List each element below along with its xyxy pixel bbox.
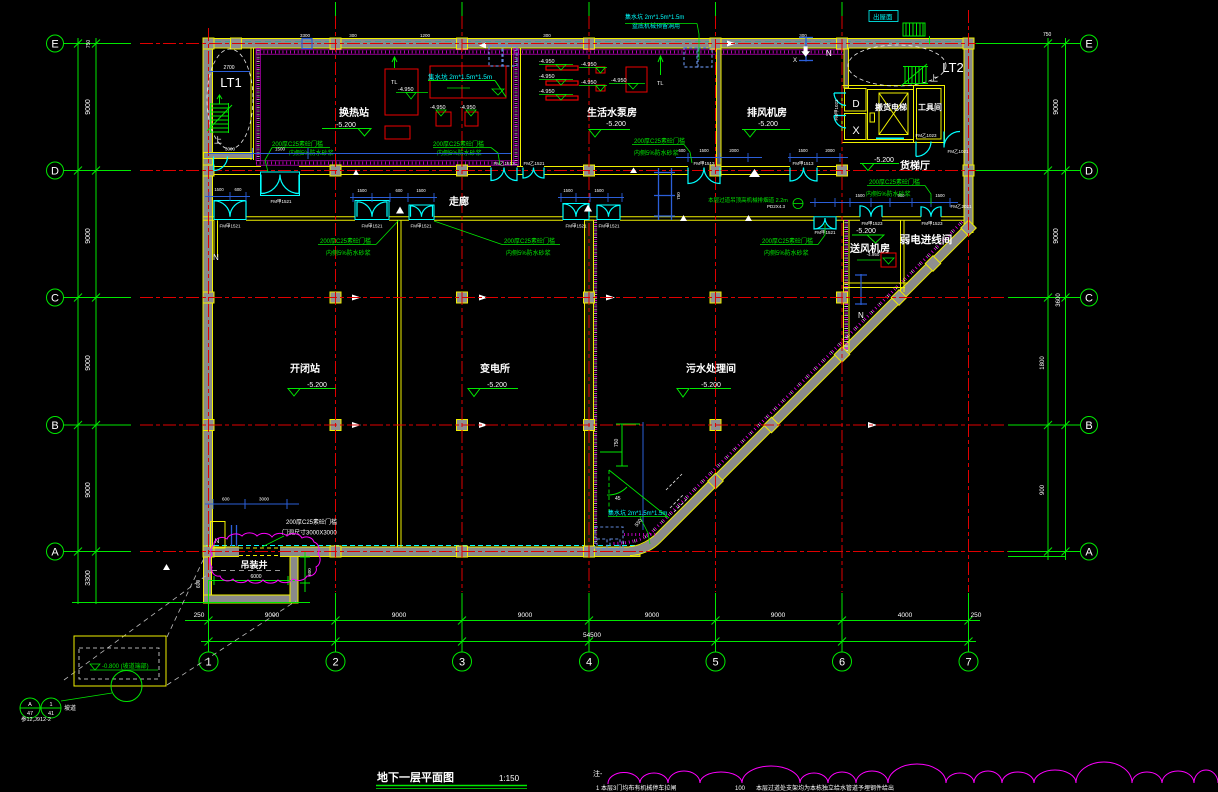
svg-text:1500: 1500 [275,147,286,152]
svg-text:-0.800 (坡道端部): -0.800 (坡道端部) [102,662,149,670]
svg-text:工具间: 工具间 [918,102,942,112]
svg-text:1500: 1500 [699,148,709,153]
svg-text:C: C [1085,293,1093,305]
svg-text:6000: 6000 [250,574,261,580]
svg-text:PD2X4.3: PD2X4.3 [767,204,786,209]
svg-text:内侧5%防水砂浆: 内侧5%防水砂浆 [764,249,809,257]
svg-text:1500: 1500 [594,188,604,193]
svg-text:LT2: LT2 [942,60,963,75]
svg-text:9000: 9000 [1053,228,1060,244]
svg-text:地下一层平面图: 地下一层平面图 [377,770,454,784]
svg-text:9000: 9000 [771,612,786,619]
svg-text:1500: 1500 [563,188,573,193]
svg-text:弱电进线间: 弱电进线间 [900,233,953,246]
svg-text:9000: 9000 [265,612,280,619]
svg-text:1:150: 1:150 [499,774,520,783]
svg-text:N: N [213,253,219,262]
svg-text:TL: TL [657,81,663,87]
svg-text:600: 600 [396,188,404,193]
svg-text:1500: 1500 [798,148,808,153]
svg-text:排风机房: 排风机房 [747,106,787,119]
svg-text:-5.200: -5.200 [874,157,894,164]
svg-text:本层过道处支架均为本栋独立给水管道予埋钢件给出: 本层过道处支架均为本栋独立给水管道予埋钢件给出 [756,784,894,792]
svg-text:100: 100 [735,786,746,792]
svg-text:吊装井: 吊装井 [240,559,267,570]
svg-text:600: 600 [222,497,230,502]
svg-text:1800: 1800 [1040,356,1046,370]
svg-text:1500: 1500 [357,188,367,193]
svg-text:200厚C25素砼门槛: 200厚C25素砼门槛 [320,237,371,245]
svg-text:-5.200: -5.200 [856,228,876,235]
svg-text:200厚C25素砼门槛: 200厚C25素砼门槛 [762,237,813,245]
svg-text:2: 2 [332,657,338,669]
svg-text:注-: 注- [593,769,603,778]
svg-text:内侧5%防水砂浆: 内侧5%防水砂浆 [326,249,371,257]
svg-text:上: 上 [214,136,222,145]
svg-text:45: 45 [615,496,621,502]
svg-text:750: 750 [86,40,92,49]
svg-text:参12,J912-2: 参12,J912-2 [21,715,51,723]
svg-text:-5.200: -5.200 [307,382,327,389]
svg-text:生活水泵房: 生活水泵房 [587,106,637,119]
svg-text:9000: 9000 [85,228,92,244]
svg-text:9000: 9000 [518,612,533,619]
svg-text:3000: 3000 [259,497,270,502]
svg-text:污水处理间: 污水处理间 [686,362,736,375]
svg-text:LT1: LT1 [220,75,241,90]
svg-text:FM乙2021: FM乙2021 [950,203,972,209]
svg-text:集水坑 2m*1.5m*1.5m: 集水坑 2m*1.5m*1.5m [608,509,667,517]
svg-text:内侧5%防水砂浆: 内侧5%防水砂浆 [634,149,679,157]
svg-text:1500: 1500 [416,188,426,193]
svg-text:-4.950: -4.950 [867,252,880,257]
svg-text:2000: 2000 [729,148,739,153]
svg-text:坡道: 坡道 [64,704,76,712]
svg-text:-5.200: -5.200 [336,122,356,129]
svg-text:E: E [51,39,58,51]
svg-text:200厚C25素砼门槛: 200厚C25素砼门槛 [634,137,685,145]
svg-text:1200: 1200 [420,33,431,38]
svg-text:FM乙1521: FM乙1521 [523,160,545,166]
svg-text:1 本层3门均布有机械停车拉闸: 1 本层3门均布有机械停车拉闸 [596,784,676,792]
svg-text:B: B [1085,420,1092,432]
svg-text:A: A [1085,547,1093,559]
svg-text:-5.200: -5.200 [701,382,721,389]
svg-text:FM乙1513: FM乙1513 [493,160,515,166]
svg-text:搬货电梯: 搬货电梯 [875,102,907,112]
svg-text:300: 300 [543,33,551,38]
svg-text:门洞尺寸3000X3000: 门洞尺寸3000X3000 [282,529,337,537]
svg-text:200厚C25素砼门槛: 200厚C25素砼门槛 [869,178,920,186]
svg-text:-5.200: -5.200 [487,382,507,389]
svg-text:3300: 3300 [85,570,92,586]
svg-text:9000: 9000 [645,612,660,619]
svg-text:1500: 1500 [935,193,945,198]
svg-text:换热站: 换热站 [339,106,369,119]
svg-text:9000: 9000 [85,355,92,371]
svg-text:750: 750 [614,438,620,447]
svg-text:3600: 3600 [1056,293,1062,307]
svg-text:200厚C25素砼门槛: 200厚C25素砼门槛 [286,518,337,526]
svg-text:N: N [858,311,864,320]
svg-text:-5.200: -5.200 [758,121,778,128]
svg-text:变电所: 变电所 [480,362,510,375]
svg-text:4000: 4000 [898,612,913,619]
svg-text:内侧5%防水砂浆: 内侧5%防水砂浆 [866,190,911,198]
svg-text:集水坑 2m*1.5m*1.5m: 集水坑 2m*1.5m*1.5m [428,72,492,81]
svg-text:9000: 9000 [392,612,407,619]
svg-text:X: X [793,58,797,64]
svg-text:E: E [1085,39,1092,51]
svg-text:300: 300 [349,33,357,38]
svg-text:D: D [51,166,59,178]
svg-text:750: 750 [676,192,681,200]
svg-text:9000: 9000 [1053,99,1060,115]
svg-text:1500: 1500 [214,187,224,192]
svg-text:开闭站: 开闭站 [290,362,320,375]
svg-text:3300: 3300 [300,33,311,38]
svg-text:7: 7 [965,657,971,669]
svg-text:FM乙1023: FM乙1023 [915,132,937,138]
svg-text:N: N [826,49,832,58]
svg-text:3000: 3000 [225,147,236,152]
svg-text:-5.200: -5.200 [606,121,626,128]
svg-text:D: D [852,99,859,110]
svg-text:200厚C25素砼门槛: 200厚C25素砼门槛 [433,140,484,148]
svg-text:1: 1 [49,702,52,708]
svg-text:5: 5 [712,657,718,669]
svg-text:上: 上 [930,74,938,83]
svg-text:9000: 9000 [85,482,92,498]
svg-text:54500: 54500 [583,632,601,639]
svg-text:250: 250 [971,612,982,619]
svg-text:出屋面: 出屋面 [873,12,893,21]
svg-text:FM乙1021: FM乙1021 [947,148,969,154]
svg-text:本层过道吊顶高机械排烟道 2.2m: 本层过道吊顶高机械排烟道 2.2m [708,196,788,204]
svg-text:A: A [28,702,32,708]
svg-text:货梯厅: 货梯厅 [900,159,930,172]
svg-text:内侧5%防水砂浆: 内侧5%防水砂浆 [506,249,551,257]
svg-text:250: 250 [194,612,205,619]
svg-text:750: 750 [1043,32,1052,38]
svg-text:集水坑 2m*1.5m*1.5m: 集水坑 2m*1.5m*1.5m [625,13,684,21]
svg-text:2700: 2700 [223,65,234,71]
svg-text:9000: 9000 [85,99,92,115]
svg-text:1500: 1500 [855,193,865,198]
svg-text:X: X [852,125,860,137]
svg-text:B: B [51,420,58,432]
svg-text:200厚C25素砼门槛: 200厚C25素砼门槛 [504,237,555,245]
svg-text:4: 4 [586,657,592,669]
svg-text:600: 600 [235,187,243,192]
svg-text:TL: TL [391,80,397,86]
svg-text:600: 600 [307,568,312,576]
svg-text:600: 600 [196,580,202,589]
svg-text:3: 3 [459,657,465,669]
svg-text:A: A [51,547,59,559]
svg-text:C: C [51,293,59,305]
svg-text:走廊: 走廊 [448,195,469,208]
svg-text:D: D [1085,166,1093,178]
svg-text:900: 900 [1040,484,1046,495]
svg-text:6: 6 [839,657,845,669]
svg-text:2000: 2000 [825,148,835,153]
svg-text:600: 600 [679,148,687,153]
